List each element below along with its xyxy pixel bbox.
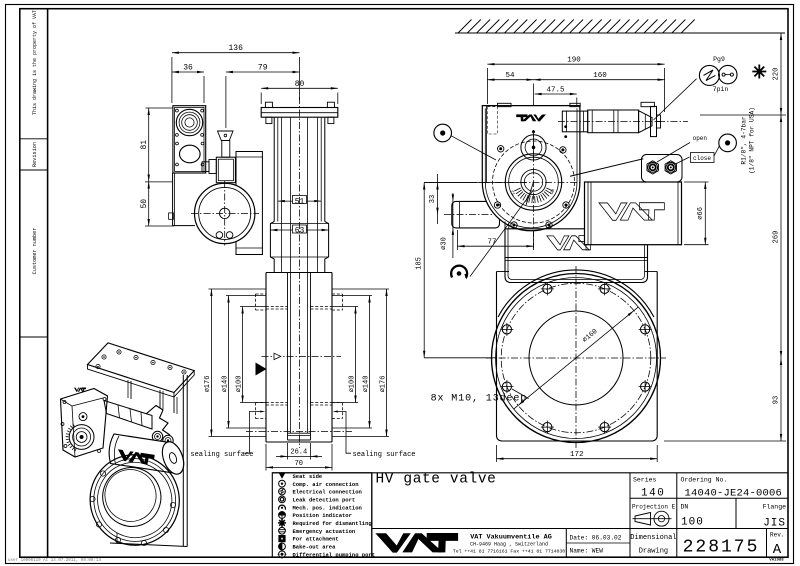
svg-text:14040-JE24-0006: 14040-JE24-0006 <box>685 487 783 499</box>
svg-text:160: 160 <box>593 72 607 80</box>
svg-text:172: 172 <box>570 451 584 459</box>
svg-text:Differential pumping port: Differential pumping port <box>293 551 376 558</box>
svg-text:80: 80 <box>295 80 305 89</box>
svg-text:79: 79 <box>258 64 268 73</box>
svg-text:For attachment: For attachment <box>293 536 339 543</box>
svg-text:Bake-out area: Bake-out area <box>293 544 337 551</box>
svg-text:HV gate valve: HV gate valve <box>376 471 497 487</box>
svg-text:54: 54 <box>505 72 515 80</box>
svg-text:∅176: ∅176 <box>379 376 387 393</box>
svg-text:7pin: 7pin <box>713 86 729 93</box>
svg-text:140: 140 <box>641 488 665 500</box>
svg-text:190: 190 <box>567 57 581 65</box>
svg-text:This drawing is the property o: This drawing is the property of VAT. <box>32 7 38 115</box>
svg-text:VAT Vakuumventile AG: VAT Vakuumventile AG <box>470 534 552 542</box>
svg-text:Customer number: Customer number <box>32 228 38 275</box>
svg-text:Required for dismantling: Required for dismantling <box>293 520 372 527</box>
svg-text:93: 93 <box>773 396 781 404</box>
svg-text:∅140: ∅140 <box>362 376 370 393</box>
svg-text:Position indicator: Position indicator <box>293 512 352 519</box>
svg-text:user 10000110 At 14.07.2011, 0: user 10000110 At 14.07.2011, 09:00:14 <box>8 559 101 563</box>
svg-text:8x M10, 13deep: 8x M10, 13deep <box>431 393 528 405</box>
svg-text:136: 136 <box>228 44 243 53</box>
svg-text:Electrical connection: Electrical connection <box>293 489 362 496</box>
svg-text:Date: 06.03.02: Date: 06.03.02 <box>570 535 622 542</box>
svg-text:47.5: 47.5 <box>546 86 565 94</box>
svg-text:Emergency actuation: Emergency actuation <box>293 528 356 535</box>
svg-text:Rev.: Rev. <box>770 532 784 539</box>
svg-text:∅176: ∅176 <box>204 376 212 393</box>
svg-text:∅140: ∅140 <box>221 376 229 393</box>
svg-text:Projection E: Projection E <box>632 504 676 511</box>
svg-text:∅30: ∅30 <box>440 237 448 250</box>
svg-text:Ordering No.: Ordering No. <box>681 477 728 484</box>
svg-text:A: A <box>773 542 782 558</box>
svg-text:R1/8", 4-7bar: R1/8", 4-7bar <box>741 116 748 165</box>
svg-text:sealing surface: sealing surface <box>190 451 253 459</box>
svg-text:∅66: ∅66 <box>697 207 705 220</box>
svg-text:Drawing: Drawing <box>639 548 668 556</box>
svg-text:70: 70 <box>295 460 303 468</box>
svg-text:36: 36 <box>183 64 193 73</box>
svg-text:81: 81 <box>140 140 149 150</box>
svg-text:sealing surface: sealing surface <box>353 451 416 459</box>
svg-text:228175: 228175 <box>683 538 760 558</box>
svg-text:DN: DN <box>681 504 689 511</box>
svg-text:CH-9469 Haag , Switzerland: CH-9469 Haag , Switzerland <box>470 542 548 548</box>
svg-text:∅100: ∅100 <box>348 376 356 393</box>
svg-text:100: 100 <box>681 517 704 529</box>
svg-text:Comp. air connection: Comp. air connection <box>293 481 359 488</box>
svg-text:220: 220 <box>773 68 781 81</box>
svg-text:JIS: JIS <box>763 518 786 530</box>
svg-text:Name: WEW: Name: WEW <box>570 548 604 555</box>
svg-text:Pg9: Pg9 <box>713 56 725 63</box>
svg-text:Tel ++41 81 7716161 Fax ++41 8: Tel ++41 81 7716161 Fax ++41 81 7714830 <box>453 549 565 555</box>
svg-text:(1/8" NPT for USA): (1/8" NPT for USA) <box>749 107 756 174</box>
svg-text:Flange: Flange <box>763 504 787 511</box>
svg-text:close: close <box>693 155 711 162</box>
svg-text:50: 50 <box>140 199 149 209</box>
svg-text:Leak detection port: Leak detection port <box>293 496 356 503</box>
svg-text:269: 269 <box>773 231 781 244</box>
svg-text:Mech. pos. indication: Mech. pos. indication <box>293 504 362 511</box>
svg-text:Seat side: Seat side <box>293 473 323 480</box>
svg-text:33: 33 <box>429 195 437 203</box>
svg-text:open: open <box>693 135 708 142</box>
svg-text:∅100: ∅100 <box>235 376 243 393</box>
svg-text:Series: Series <box>633 477 657 484</box>
svg-text:Dimensional: Dimensional <box>630 534 676 542</box>
svg-text:Revision: Revision <box>32 142 38 167</box>
svg-text:VA1988: VA1988 <box>769 558 784 562</box>
svg-text:26.4: 26.4 <box>290 449 307 457</box>
svg-text:185: 185 <box>415 257 423 270</box>
